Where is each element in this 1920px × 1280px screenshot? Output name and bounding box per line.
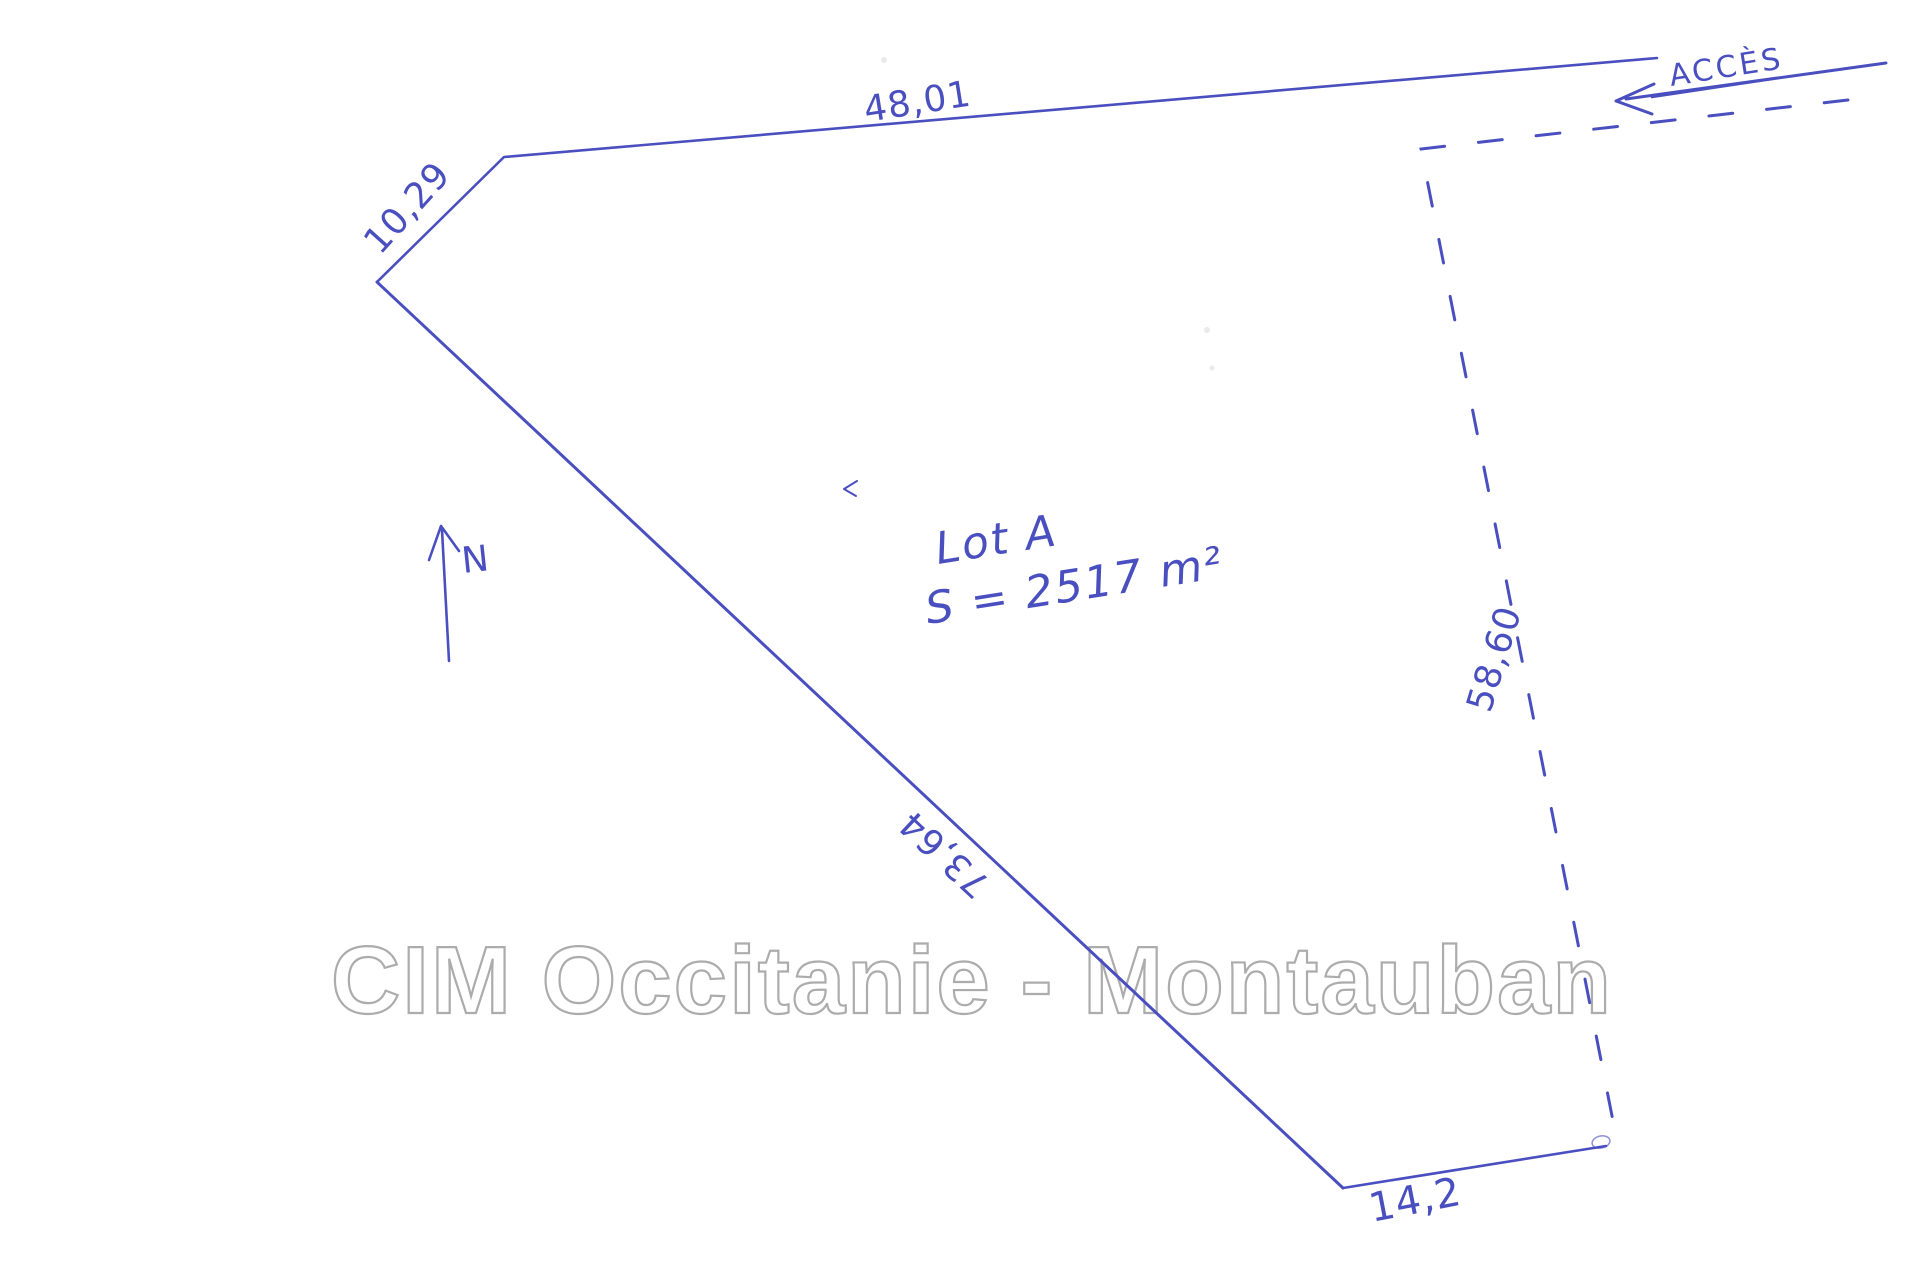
north-label: N — [460, 538, 491, 582]
north-arrow-shaft — [442, 530, 449, 661]
watermark-text: CIM Occitanie - Montauban — [331, 927, 1613, 1034]
pen-loop-mark — [1591, 1134, 1611, 1149]
parcel-bottom-edge — [1343, 1146, 1606, 1188]
plot-plan-drawing: CIM Occitanie - Montauban ACCÈS N 48,01 … — [0, 0, 1920, 1280]
parcel-diagonal-edge — [377, 282, 1343, 1188]
dim-southwest-edge-label: 73,64 — [891, 802, 998, 906]
dim-east-edge-label: 58,60 — [1459, 601, 1530, 716]
paper-speck — [881, 57, 887, 63]
dim-northwest-edge-label: 10,29 — [356, 154, 459, 262]
stray-ink-mark — [844, 481, 857, 496]
dim-top-edge-label: 48,01 — [861, 73, 974, 130]
paper-speck — [1210, 366, 1215, 371]
parcel-name-label: Lot A — [932, 505, 1061, 575]
scanned-plot-plan: CIM Occitanie - Montauban ACCÈS N 48,01 … — [0, 0, 1920, 1280]
parcel-top-boundary-line — [377, 58, 1657, 282]
dim-bottom-edge-label: 14,2 — [1365, 1169, 1465, 1232]
paper-speck — [1204, 327, 1210, 333]
